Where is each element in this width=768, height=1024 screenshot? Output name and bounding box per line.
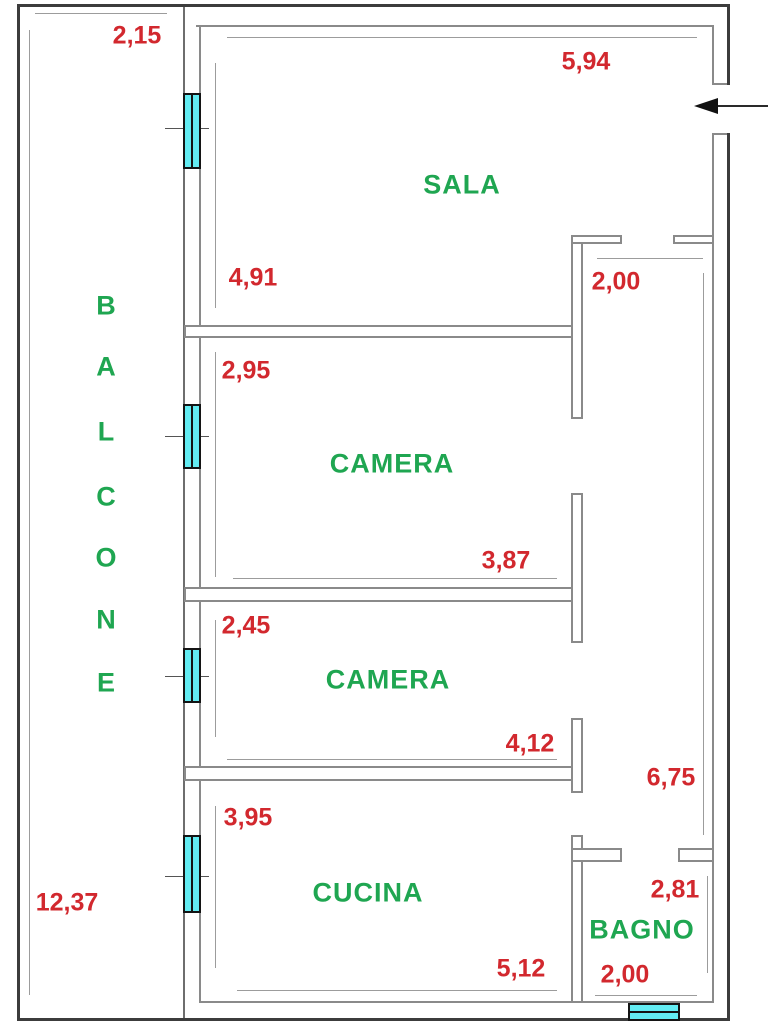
window-mullion bbox=[191, 837, 193, 911]
window-camera2 bbox=[183, 648, 201, 703]
dim-corridor-width: 2,00 bbox=[592, 268, 641, 297]
wall-camera2-cucina bbox=[184, 766, 583, 781]
dim-line-sala-depth bbox=[215, 63, 216, 308]
balcone-letter: A bbox=[96, 352, 116, 383]
dim-line-balcone-width bbox=[35, 13, 167, 14]
wall-bagno-top-left bbox=[571, 848, 622, 862]
dim-corridor-length: 6,75 bbox=[647, 764, 696, 793]
wall-inner-left-2 bbox=[199, 168, 201, 404]
wall-corridor-seg1 bbox=[571, 235, 583, 419]
wall-inner-right-lower bbox=[712, 133, 714, 1003]
balcone-letter: N bbox=[96, 605, 116, 636]
dim-line-cucina-depth bbox=[215, 806, 216, 968]
room-label-camera2: CAMERA bbox=[326, 665, 451, 696]
dim-line-balcone-length bbox=[29, 30, 30, 995]
dim-sala-depth: 4,91 bbox=[229, 264, 278, 293]
window-cucina bbox=[183, 835, 201, 913]
wall-camera1-camera2 bbox=[184, 587, 583, 602]
dim-line-corridor-width bbox=[597, 258, 703, 259]
dim-line-camera1-width bbox=[233, 578, 557, 579]
window-bagno bbox=[628, 1003, 680, 1021]
window-mullion bbox=[191, 406, 193, 467]
dim-camera1-width: 3,87 bbox=[482, 547, 531, 576]
wall-corridor-seg2 bbox=[571, 493, 583, 643]
wall-outer-right-upper bbox=[727, 4, 730, 85]
wall-inner-left-5 bbox=[199, 913, 201, 1003]
room-label-cucina: CUCINA bbox=[313, 878, 424, 909]
dim-bagno-depth: 2,81 bbox=[651, 876, 700, 905]
wall-inner-left-3 bbox=[199, 469, 201, 648]
dim-bagno-width: 2,00 bbox=[601, 961, 650, 990]
floor-plan: 2,15 5,94 4,91 2,00 2,95 3,87 2,45 4,12 … bbox=[0, 0, 768, 1024]
balcone-letter: E bbox=[97, 668, 115, 699]
dim-cucina-width: 5,12 bbox=[497, 955, 546, 984]
wall-outer-left bbox=[17, 4, 20, 1021]
wall-outer-bottom bbox=[17, 1018, 730, 1021]
wall-corridor-top-right bbox=[673, 235, 714, 244]
balcone-letter: O bbox=[95, 543, 116, 574]
dim-camera1-depth: 2,95 bbox=[222, 357, 271, 386]
dim-sala-width: 5,94 bbox=[562, 48, 611, 77]
wall-corridor-seg3 bbox=[571, 718, 583, 793]
wall-inner-left-1 bbox=[199, 25, 201, 95]
dim-balcone-width: 2,15 bbox=[113, 22, 162, 51]
wall-inner-top bbox=[196, 25, 714, 27]
dim-line-camera1-depth bbox=[215, 352, 216, 577]
room-label-sala: SALA bbox=[423, 170, 501, 201]
dim-line-corridor-length bbox=[703, 273, 704, 835]
dim-line-cucina-width bbox=[237, 990, 557, 991]
wall-sala-camera1 bbox=[184, 325, 583, 338]
window-sala bbox=[183, 93, 201, 169]
dim-line-sala-width bbox=[227, 37, 697, 38]
dim-line-camera2-depth bbox=[215, 620, 216, 737]
dim-balcone-length: 12,37 bbox=[36, 889, 99, 918]
wall-inner-right-upper bbox=[712, 25, 714, 85]
balcone-letter: C bbox=[96, 482, 116, 513]
room-label-camera1: CAMERA bbox=[330, 449, 455, 480]
dim-line-bagno-width bbox=[595, 995, 697, 996]
dim-line-camera2-width bbox=[227, 759, 557, 760]
window-mullion bbox=[191, 95, 193, 167]
entrance-arrow-icon bbox=[694, 98, 718, 114]
room-label-bagno: BAGNO bbox=[589, 915, 695, 946]
dim-camera2-depth: 2,45 bbox=[222, 612, 271, 641]
entrance-arrow-line bbox=[716, 105, 768, 107]
wall-corridor-top-left bbox=[571, 235, 622, 244]
window-mullion bbox=[630, 1011, 678, 1013]
dim-line-bagno-depth bbox=[707, 876, 708, 973]
wall-bagno-top-right bbox=[678, 848, 714, 862]
wall-outer-top bbox=[17, 4, 730, 7]
balcone-letter: L bbox=[98, 417, 115, 448]
balcone-letter: B bbox=[96, 291, 116, 322]
dim-camera2-width: 4,12 bbox=[506, 730, 555, 759]
window-camera1 bbox=[183, 404, 201, 469]
dim-cucina-depth: 3,95 bbox=[224, 804, 273, 833]
window-mullion bbox=[191, 650, 193, 701]
wall-outer-right-lower bbox=[727, 133, 730, 1021]
